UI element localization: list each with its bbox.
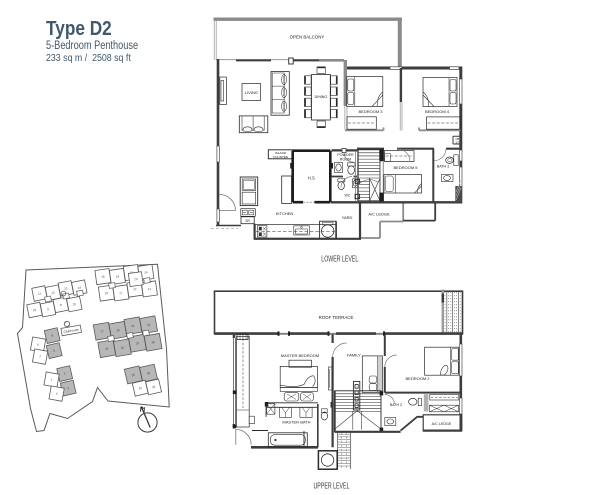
svg-text:OPEN BALCONY: OPEN BALCONY — [290, 35, 325, 40]
svg-text:DINING: DINING — [315, 95, 328, 99]
svg-text:BEDROOM 3: BEDROOM 3 — [358, 109, 383, 114]
svg-text:MASTER BATH: MASTER BATH — [282, 420, 310, 425]
svg-text:BATH 2: BATH 2 — [390, 403, 402, 407]
svg-text:A/C LEDGE: A/C LEDGE — [432, 422, 452, 426]
svg-text:FAMILY: FAMILY — [347, 352, 361, 357]
svg-text:LIVING: LIVING — [245, 90, 258, 95]
svg-text:COUNTER: COUNTER — [273, 155, 289, 159]
svg-text:ST: ST — [456, 140, 460, 144]
svg-text:BATH 3: BATH 3 — [437, 165, 449, 169]
svg-text:BEDROOM 5: BEDROOM 5 — [393, 165, 418, 170]
svg-text:POWDER: POWDER — [337, 153, 354, 157]
svg-text:BEDROOM 4: BEDROOM 4 — [425, 109, 450, 114]
svg-text:MASTER BEDROOM: MASTER BEDROOM — [281, 353, 319, 358]
svg-text:ROOF TERRACE: ROOF TERRACE — [319, 315, 354, 320]
svg-text:H.S: H.S — [308, 176, 315, 181]
svg-text:BEDROOM 2: BEDROOM 2 — [405, 376, 430, 381]
svg-text:WC: WC — [345, 194, 351, 198]
svg-text:YARD: YARD — [342, 215, 353, 220]
svg-text:UPPER LEVEL: UPPER LEVEL — [314, 481, 350, 491]
svg-text:LOWER LEVEL: LOWER LEVEL — [321, 253, 358, 263]
svg-text:KITCHEN: KITCHEN — [276, 211, 294, 216]
svg-text:A/C LEDGE: A/C LEDGE — [368, 211, 390, 216]
svg-text:ROOM: ROOM — [340, 158, 351, 162]
svg-text:N: N — [140, 405, 145, 414]
svg-text:SR: SR — [245, 219, 250, 223]
